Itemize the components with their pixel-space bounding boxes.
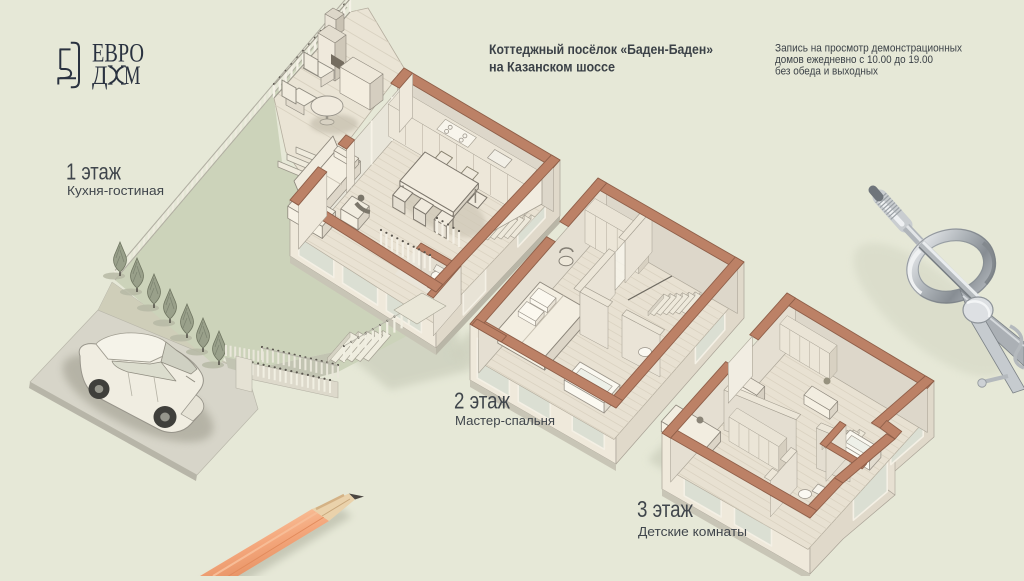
svg-text:Мастер-спальня: Мастер-спальня	[455, 413, 555, 428]
svg-text:Кухня-гостиная: Кухня-гостиная	[67, 183, 164, 198]
svg-text:Детские комнаты: Детские комнаты	[638, 524, 747, 539]
svg-text:на Казанском шоссе: на Казанском шоссе	[489, 60, 615, 75]
svg-text:2 этаж: 2 этаж	[454, 388, 510, 414]
svg-text:Запись на просмотр демонстраци: Запись на просмотр демонстрационных	[775, 43, 963, 55]
svg-text:1 этаж: 1 этаж	[66, 159, 121, 185]
svg-text:домов ежедневно с 10.00 до 19.: домов ежедневно с 10.00 до 19.00	[775, 54, 933, 66]
svg-text:М: М	[124, 61, 141, 90]
svg-text:без обеда и выходных: без обеда и выходных	[775, 66, 879, 78]
svg-text:3 этаж: 3 этаж	[637, 496, 693, 522]
svg-text:Д: Д	[92, 61, 108, 90]
svg-text:Коттеджный посёлок «Баден-Баде: Коттеджный посёлок «Баден-Баден»	[489, 42, 713, 57]
